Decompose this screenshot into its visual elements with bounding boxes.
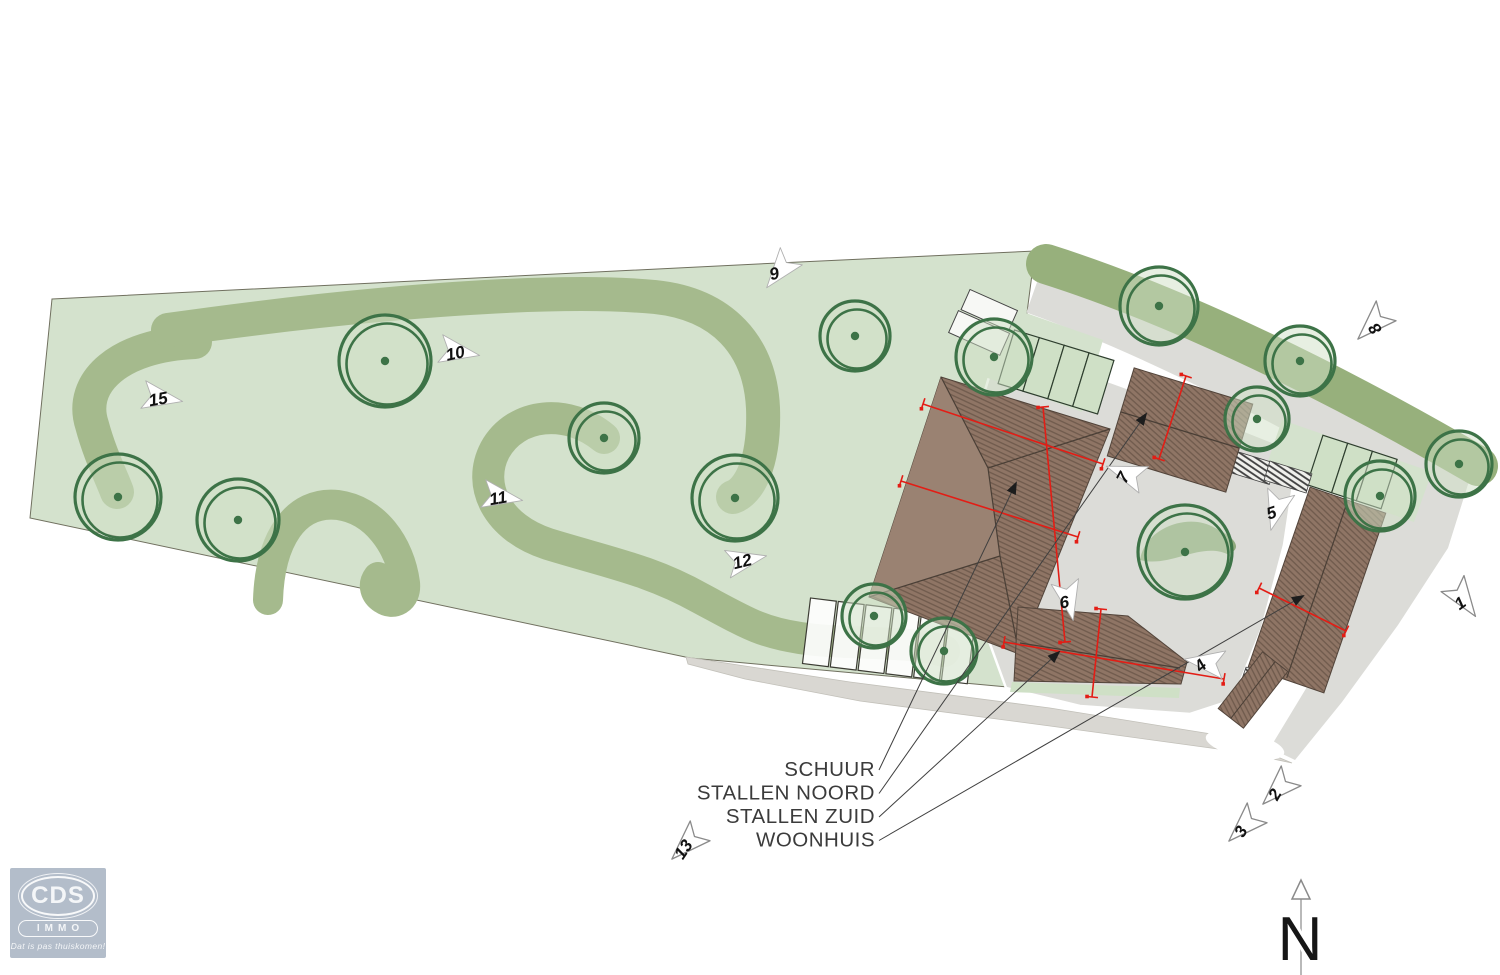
tree — [1225, 387, 1289, 451]
legend-label: WOONHUIS — [756, 829, 875, 852]
tree — [1426, 431, 1492, 497]
viewpoint-marker-2[interactable]: 2 — [1253, 766, 1301, 814]
north-label: N — [1278, 905, 1323, 974]
tree — [75, 454, 161, 540]
tree — [1265, 326, 1335, 396]
driveway-notch — [1203, 724, 1287, 766]
tree — [692, 455, 778, 541]
tree — [197, 479, 279, 561]
north-arrowhead — [1292, 880, 1310, 899]
tree — [1120, 267, 1198, 345]
logo-banner: IMMO — [18, 920, 98, 937]
tree — [842, 584, 906, 648]
north-arrow: N — [1278, 880, 1323, 975]
tree — [820, 301, 890, 371]
logo-top-text: CDS — [31, 882, 85, 910]
viewpoint-marker-13[interactable]: 13 — [662, 821, 710, 869]
logo-tagline: Dat is pas thuiskomen! — [11, 941, 106, 951]
tree — [569, 403, 639, 473]
viewpoint-marker-1[interactable]: 1 — [1441, 576, 1487, 625]
tree — [956, 319, 1032, 395]
site-plan: SCHUURSTALLEN NOORDSTALLEN ZUIDWOONHUIS … — [0, 0, 1500, 975]
marker-number: 11 — [488, 487, 509, 509]
tree — [1345, 461, 1415, 531]
tree — [911, 618, 977, 684]
viewpoint-marker-3[interactable]: 3 — [1219, 803, 1267, 851]
viewpoint-marker-8[interactable]: 8 — [1348, 301, 1396, 349]
logo-cds-immo[interactable]: CDS IMMO Dat is pas thuiskomen! — [10, 868, 106, 958]
logo-oval: CDS — [21, 876, 95, 916]
legend-label: SCHUUR — [784, 758, 875, 781]
tree — [339, 315, 431, 407]
legend-label: STALLEN ZUID — [726, 805, 875, 828]
marker-number: 15 — [147, 388, 169, 410]
legend-label: STALLEN NOORD — [697, 782, 875, 805]
